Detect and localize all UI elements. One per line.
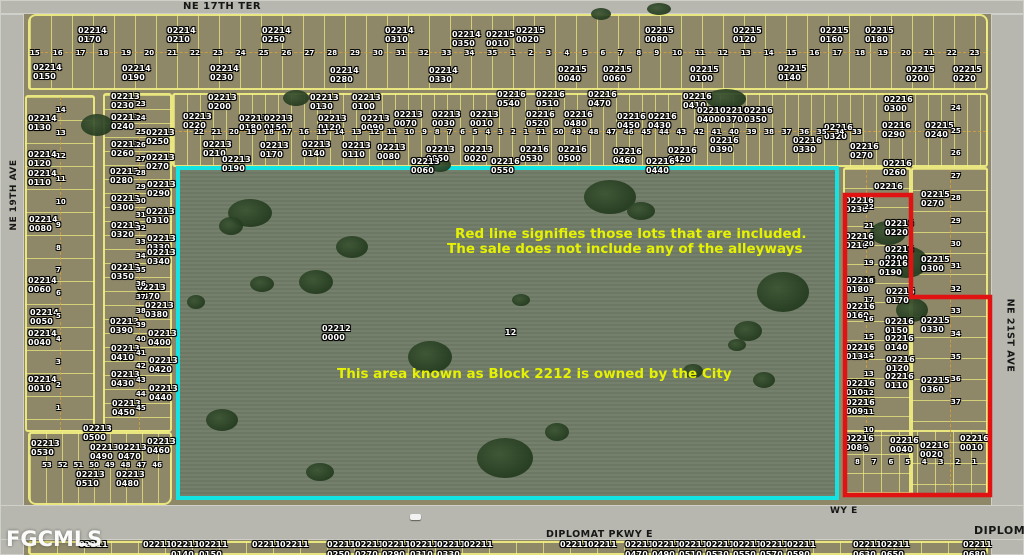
parcel-id-label: 02214 0110: [28, 169, 57, 187]
road-ne-17th-ter: [0, 0, 1024, 14]
lot-number: 10: [56, 198, 66, 206]
lot-number-strip: 2221201918171615141312111098765432151504…: [194, 128, 862, 137]
lot-number: 22: [194, 128, 204, 137]
lot-number: 13: [56, 129, 66, 137]
parcel-id-label: 02211: [760, 540, 789, 549]
parcel-id-label: 02214 0350: [452, 30, 481, 48]
lot-number: 33: [442, 49, 452, 58]
parcel-id-label: 02213 0020: [464, 145, 493, 163]
lot-number: 11: [864, 408, 874, 416]
parcel-id-label: 02213 0480: [116, 470, 145, 488]
lot-number: 10: [864, 426, 874, 434]
parcel-id-label: 02214 0010: [28, 375, 57, 393]
parcel-id-label: 02211: [679, 540, 708, 549]
lot-number: 26: [136, 141, 146, 149]
parcel-id-label-partial: 0590: [787, 550, 810, 555]
lot-number: 48: [121, 461, 131, 470]
lot-number: 17: [282, 128, 292, 137]
lot-number-strip: 5352515049484746: [42, 461, 162, 470]
lot-number: 33: [951, 307, 961, 315]
lot-number: 1: [972, 458, 977, 467]
lot-number: 7: [872, 458, 877, 467]
lot-number: 3: [56, 358, 61, 366]
lot-number: 50: [554, 128, 564, 137]
lot-number: 16: [53, 49, 63, 58]
lot-number: 6: [56, 289, 61, 297]
lot-number: 45: [641, 128, 651, 137]
parcel-id-label-partial: 0510: [679, 550, 702, 555]
lot-number: 51: [536, 128, 546, 137]
tree: [734, 321, 762, 341]
lot-number: 19: [864, 259, 874, 267]
lot-number: 12: [56, 152, 66, 160]
parcel-id-label: 02213 0470: [118, 443, 147, 461]
lot-number-strip: 2425262728293031323334353637: [951, 104, 961, 406]
lot-number: 3: [498, 128, 503, 137]
parcel-id-label: 02216 0170: [886, 287, 915, 305]
parcel-id-label: 02214 0250: [262, 26, 291, 44]
parcel-id-label: 02211: [410, 540, 439, 549]
lot-number: 23: [213, 49, 223, 58]
parcel-id-label: 02213 0190: [222, 155, 251, 173]
lot-number: 39: [747, 128, 757, 137]
parcel-id-label: 02214 0080: [29, 215, 58, 233]
tree: [477, 438, 533, 478]
lot-number: 10: [672, 49, 682, 58]
lot-number: 31: [951, 262, 961, 270]
tree: [206, 409, 238, 431]
parcel-id-label: 02211: [853, 540, 882, 549]
parcel-id-label: 02216 0390: [710, 136, 739, 154]
lot-number: 20: [901, 49, 911, 58]
parcel-id-label: 02215 0160: [820, 26, 849, 44]
parcel-id-label: 02213 0310: [146, 207, 175, 225]
lot-number: 2: [528, 49, 533, 58]
lot-number: 14: [334, 128, 344, 137]
lot-number: 9: [422, 128, 427, 137]
parcel-id-label: 02216 0300: [884, 95, 913, 113]
parcel-id-label: 02214 0150: [33, 63, 62, 81]
lot-number: 14: [864, 352, 874, 360]
parcel-id-label: 02215 0140: [778, 64, 807, 82]
parcel-id-label: 02215 0180: [865, 26, 894, 44]
parcel-id-label: 02216 0500: [558, 145, 587, 163]
lot-number: 35: [488, 49, 498, 58]
tree: [299, 270, 333, 294]
lot-number: 12: [864, 389, 874, 397]
parcel-id-label: 02216 0140: [885, 334, 914, 352]
lot-number: 25: [136, 128, 146, 136]
lot-number: 7: [618, 49, 623, 58]
parcel-id-label: 02211: [625, 540, 654, 549]
lot-number-strip: 2324252627282930313233343536373839404142…: [136, 100, 146, 412]
lot-number: 35: [817, 128, 827, 137]
parcel-id-label: 02215 0220: [953, 65, 982, 83]
street-label-ne-19th-ave: NE 19TH AVE: [9, 145, 19, 245]
parcel-id-label-partial: 0290: [382, 550, 405, 555]
parcel-id-label: 02216 0120: [886, 355, 915, 373]
lot-number: 6: [888, 458, 893, 467]
parcel-id-label: 02216 0290: [882, 121, 911, 139]
parcel-id-label: 02213 0340: [147, 248, 176, 266]
parcel-id-label: 02215 0300: [921, 255, 950, 273]
lot-number: 12: [718, 49, 728, 58]
parcel-id-label: 02211: [252, 540, 281, 549]
parcel-id-label: 02211: [787, 540, 816, 549]
parcel-id-label: 02211: [143, 540, 172, 549]
lot-number: 27: [305, 49, 315, 58]
lot-number: 16: [864, 315, 874, 323]
parcel-id-label: 02214 0040: [28, 329, 57, 347]
lot-number: 51: [74, 461, 84, 470]
parcel-id-label: 02211: [963, 540, 992, 549]
lot-number: 19: [878, 49, 888, 58]
lot-number: 30: [136, 197, 146, 205]
parcel-id-label-partial: 0330: [437, 550, 460, 555]
parcel-id-label: 02213 0440: [149, 384, 178, 402]
lot-number: 15: [317, 128, 327, 137]
parcel-id-label: 02214 0230: [210, 64, 239, 82]
parcel-id-label: 02213 0200: [208, 93, 237, 111]
parcel-id-label-partial: 0530: [706, 550, 729, 555]
parcel-id-label-partial: 0310: [410, 550, 433, 555]
lot-number: 8: [636, 49, 641, 58]
parcel-id-label: 02213 0400: [148, 329, 177, 347]
lot-number: 35: [136, 266, 146, 274]
parcel-id-label-partial: 0250: [327, 550, 350, 555]
lot-number: 12: [369, 128, 379, 137]
lot-number: 9: [654, 49, 659, 58]
parcel-id-label: 02216 0520: [526, 110, 555, 128]
aerial-parcel-map: 02214 017002214 021002214 025002214 0310…: [0, 0, 1024, 555]
tree: [283, 90, 309, 106]
lot-number: 4: [485, 128, 490, 137]
lot-number: 32: [136, 224, 146, 232]
lot-number: 8: [56, 244, 61, 252]
lot-number: 35: [951, 353, 961, 361]
parcel-id-label: 02213 0070: [394, 110, 423, 128]
lot-number: 17: [76, 49, 86, 58]
lot-number: 23: [970, 49, 980, 58]
parcel-id-label: 02213 0250: [146, 128, 175, 146]
lot-number: 37: [136, 293, 146, 301]
parcel-id-label-partial: 0550: [733, 550, 756, 555]
parcel-id-label: 02213 0030: [432, 110, 461, 128]
parcel-id-label: 02215 0360: [921, 376, 950, 394]
lot-number: 46: [624, 128, 634, 137]
lot-number: 21: [864, 222, 874, 230]
tree: [757, 272, 809, 312]
lot-number: 17: [833, 49, 843, 58]
parcel-id-label: 02213 0530: [31, 439, 60, 457]
lot-number: 29: [136, 183, 146, 191]
parcel-id-label: 02216 0330: [793, 136, 822, 154]
lot-number-strip: 1413121110987654321: [56, 106, 66, 412]
lot-number: 10: [405, 128, 415, 137]
fgcmls-watermark: FGCMLS: [6, 527, 102, 551]
lot-number: 15: [787, 49, 797, 58]
parcel-id-label-partial: 0650: [881, 550, 904, 555]
lot-number: 33: [136, 238, 146, 246]
parcel-id-label: 02211: [382, 540, 411, 549]
lot-number: 43: [136, 376, 146, 384]
road-ne-19th-ave: [0, 14, 24, 555]
lot-number: 36: [799, 128, 809, 137]
lot-number: 31: [396, 49, 406, 58]
lot-number: 18: [855, 49, 865, 58]
lot-number: 4: [564, 49, 569, 58]
parcel-id-label: 02215 0040: [558, 65, 587, 83]
parcel-id-label: 02211: [171, 540, 200, 549]
lot-number-strip: 222120191817161514131211109: [864, 203, 874, 453]
lot-number: 3: [546, 49, 551, 58]
lot-number: 37: [951, 398, 961, 406]
lot-number: 13: [864, 370, 874, 378]
tree: [545, 423, 569, 441]
lot-number: 11: [387, 128, 397, 137]
parcel-id-label: 02215 0200: [906, 65, 935, 83]
lot-number: 40: [729, 128, 739, 137]
lot-number: 2: [56, 381, 61, 389]
parcel-id-label: 02213 0290: [147, 180, 176, 198]
parcel-id-label: 02216 0440: [646, 157, 675, 175]
parcel-id-label: 02213 0170: [260, 141, 289, 159]
parcel-id-label: 02216 0460: [613, 147, 642, 165]
lot-number: 20: [864, 240, 874, 248]
lot-number: 1: [523, 128, 528, 137]
lot-number: 28: [951, 194, 961, 202]
lot-number: 23: [136, 100, 146, 108]
lot-number: 39: [136, 321, 146, 329]
lot-number: 42: [694, 128, 704, 137]
parcel-id-label: 02211: [652, 540, 681, 549]
parcel-id-label: 02213 0510: [76, 470, 105, 488]
parcel-id-label: 02216 0150: [885, 317, 914, 335]
parcel-id-label: 02213 0460: [147, 437, 176, 455]
lot-number: 15: [864, 333, 874, 341]
road-diplomat-pkwy: [0, 505, 1024, 540]
lot-number: 19: [122, 49, 132, 58]
parcel-id-label: 02216 0040: [890, 436, 919, 454]
lot-number: 33: [852, 128, 862, 137]
parcel-id-label: 02213 0080: [377, 143, 406, 161]
parcel-id-label-partial: 0140: [171, 550, 194, 555]
lot-number: 5: [473, 128, 478, 137]
parcel-id-label-partial: 0490: [652, 550, 675, 555]
parcel-id-label: 02216 0270: [850, 142, 879, 160]
lot-number: 34: [465, 49, 475, 58]
lot-number: 8: [855, 458, 860, 467]
parcel-id-label: 02213 0010: [470, 110, 499, 128]
parcel-id-label: 02213 0390: [110, 317, 139, 335]
parcel-id-label: 02215 0120: [733, 26, 762, 44]
parcel-id-label: 02216 0220: [885, 219, 914, 237]
lot-number: 21: [924, 49, 934, 58]
lot-number: 53: [42, 461, 52, 470]
tree: [647, 3, 671, 15]
lot-number: 36: [951, 375, 961, 383]
lot-number: 5: [582, 49, 587, 58]
lot-number: 11: [695, 49, 705, 58]
lot-number: 13: [352, 128, 362, 137]
parcel-id-label-partial: 0630: [853, 550, 876, 555]
parcel-id-label: 02213 0280: [110, 167, 139, 185]
lot-number: 38: [764, 128, 774, 137]
lot-number: 6: [600, 49, 605, 58]
lot-number: 34: [136, 252, 146, 260]
parcel-id-label: 02215 0080: [645, 26, 674, 44]
parcel-id-label: 02215 0010: [486, 30, 515, 48]
lot-number: 21: [167, 49, 177, 58]
parcel-id-label: 02214 0060: [28, 276, 57, 294]
parcel-id-label: 02214 0170: [78, 26, 107, 44]
parcel-id-label-partial: 0570: [760, 550, 783, 555]
lot-number: 28: [327, 49, 337, 58]
lot-number: 49: [105, 461, 115, 470]
lot-number: 21: [212, 128, 222, 137]
parcel-id-label: 02214 0280: [330, 66, 359, 84]
parcel-id-label: 02213 0500: [83, 424, 112, 442]
parcel-id-label: 02211: [560, 540, 589, 549]
lot-number: 49: [571, 128, 581, 137]
lot-number: 25: [259, 49, 269, 58]
parcel-id-label: 02213 0420: [149, 356, 178, 374]
lot-number: 17: [864, 296, 874, 304]
parcel-id-label: 02211: [355, 540, 384, 549]
lot-number: 34: [834, 128, 844, 137]
parcel-id-label: 02211: [881, 540, 910, 549]
lot-number: 7: [56, 266, 61, 274]
parcel-id-label: 02215 0100: [690, 65, 719, 83]
lot-number: 2: [955, 458, 960, 467]
lot-number: 27: [136, 155, 146, 163]
lot-number: 5: [56, 312, 61, 320]
annotation-red-line-1: Red line signifies those lots that are i…: [455, 226, 806, 242]
lot-number: 43: [677, 128, 687, 137]
parcel-id-label: 02213 0140: [302, 140, 331, 158]
lot-number: 1: [56, 404, 61, 412]
lot-number: 26: [951, 149, 961, 157]
parcel-id-label-partial: 0270: [355, 550, 378, 555]
parcel-id-label: 02216 0350: [744, 106, 773, 124]
lot-number: 37: [782, 128, 792, 137]
lot-number: 22: [190, 49, 200, 58]
lot-number: 9: [56, 221, 61, 229]
lot-number: 46: [152, 461, 162, 470]
lot-number: 30: [373, 49, 383, 58]
lot-number: 15: [30, 49, 40, 58]
lot-number: 7: [447, 128, 452, 137]
parcel-id-label: 02215 0060: [603, 65, 632, 83]
street-label-ne-17th-ter: NE 17TH TER: [183, 1, 261, 12]
lot-number: 44: [136, 390, 146, 398]
lot-number: 27: [951, 172, 961, 180]
lot-number: 5: [905, 458, 910, 467]
lot-number: 31: [136, 211, 146, 219]
parcel-id-label: 02216 0530: [520, 145, 549, 163]
vehicle: [410, 514, 421, 520]
lot-number: 47: [606, 128, 616, 137]
parcel-id-label: 02211: [199, 540, 228, 549]
lot-number: 44: [659, 128, 669, 137]
lot-number: 13: [741, 49, 751, 58]
parcel-id-label: 02213 0100: [352, 93, 381, 111]
parcel-id-label: 02213 0110: [342, 141, 371, 159]
parcel-id-label-partial: 0680: [963, 550, 986, 555]
lot-number: 18: [864, 277, 874, 285]
parcel-id-label: 02211: [588, 540, 617, 549]
lot-number: 30: [951, 240, 961, 248]
parcel-id-label: 02213 0060: [411, 157, 440, 175]
parcel-id-label: 02213 0380: [145, 301, 174, 319]
parcel-id-label-partial: 0470: [625, 550, 648, 555]
tree: [81, 114, 113, 136]
parcel-id-label: 02214 0130: [28, 114, 57, 132]
tree: [512, 294, 530, 306]
annotation-block-2212: This area known as Block 2212 is owned b…: [337, 366, 732, 382]
lot-number: 28: [136, 169, 146, 177]
lot-number: 45: [136, 404, 146, 412]
lot-number: 34: [951, 330, 961, 338]
annotation-red-line-2: The sale does not include any of the all…: [447, 241, 802, 257]
parcel-id-label-partial: 0150: [199, 550, 222, 555]
lot-number: 38: [136, 307, 146, 315]
parcel-id-label: 02216 0480: [564, 110, 593, 128]
parcel-id-label: 02216 0020: [920, 441, 949, 459]
lot-number: 4: [56, 335, 61, 343]
parcel-id-label: 02216 0110: [885, 372, 914, 390]
lot-number: 18: [99, 49, 109, 58]
lot-number: 4: [922, 458, 927, 467]
parcel-id-label: 02214 0210: [167, 26, 196, 44]
parcel-id-label: 02213 0130: [310, 93, 339, 111]
parcel-id-label: 02214 0310: [385, 26, 414, 44]
lot-number: 1: [510, 49, 515, 58]
lot-number: 11: [56, 175, 66, 183]
lot-number: 24: [951, 104, 961, 112]
parcel-id-label: 02211: [437, 540, 466, 549]
lot-number: 22: [947, 49, 957, 58]
lot-number: 36: [136, 280, 146, 288]
parcel-id-label: 02214 0120: [28, 150, 57, 168]
lot-number: 20: [229, 128, 239, 137]
lot-number: 14: [56, 106, 66, 114]
parcel-id-label: 02211: [706, 540, 735, 549]
street-label-diplomat-pkwy: DIPLOMAT PKWY E: [546, 529, 653, 540]
tree: [728, 339, 746, 351]
parcel-id-label: 02212 0000: [322, 324, 351, 342]
lot-number: 29: [951, 217, 961, 225]
parcel-id-label: 12: [505, 328, 517, 337]
lot-number: 48: [589, 128, 599, 137]
lot-number: 25: [951, 127, 961, 135]
parcel-id-label: 02211: [327, 540, 356, 549]
street-label-diplomat-partial-right: DIPLOM: [974, 524, 1024, 537]
lot-number: 6: [460, 128, 465, 137]
lot-number: 52: [58, 461, 68, 470]
lot-number: 24: [236, 49, 246, 58]
parcel-id-label: 02214 0330: [429, 66, 458, 84]
lot-number: 2: [511, 128, 516, 137]
lot-number: 20: [144, 49, 154, 58]
tree: [306, 463, 334, 481]
parcel-id-label: 02216 0510: [536, 90, 565, 108]
parcel-id-label: 02211: [280, 540, 309, 549]
lot-number: 22: [864, 203, 874, 211]
lot-number: 18: [264, 128, 274, 137]
lot-number: 42: [136, 362, 146, 370]
tree: [627, 202, 655, 220]
